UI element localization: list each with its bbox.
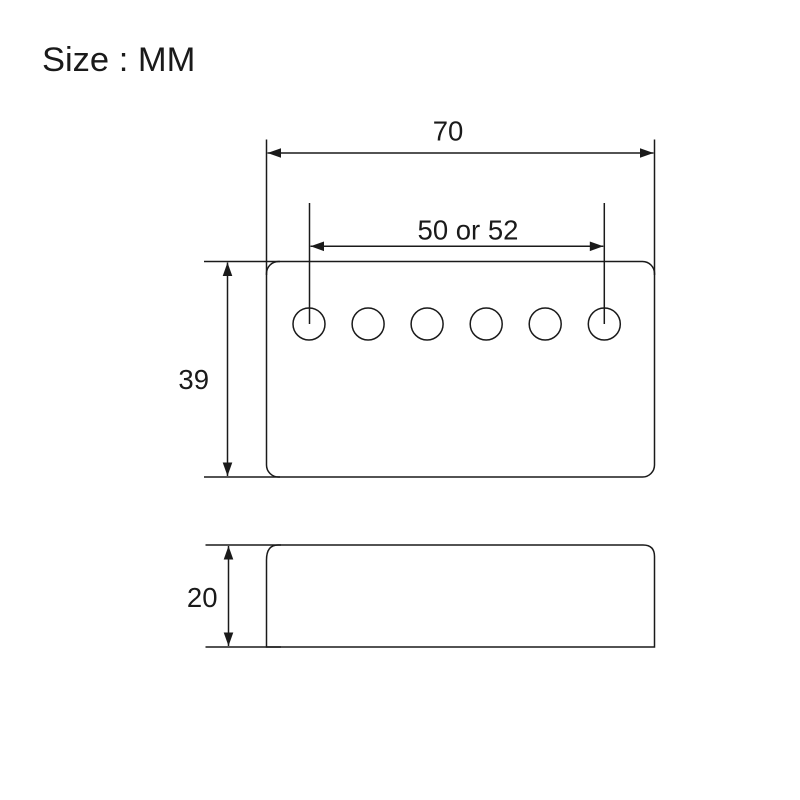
- svg-text:20: 20: [187, 582, 218, 613]
- svg-text:50 or 52: 50 or 52: [418, 215, 519, 246]
- svg-text:70: 70: [433, 116, 464, 147]
- svg-text:Size : MM: Size : MM: [42, 41, 195, 79]
- svg-text:39: 39: [178, 364, 209, 395]
